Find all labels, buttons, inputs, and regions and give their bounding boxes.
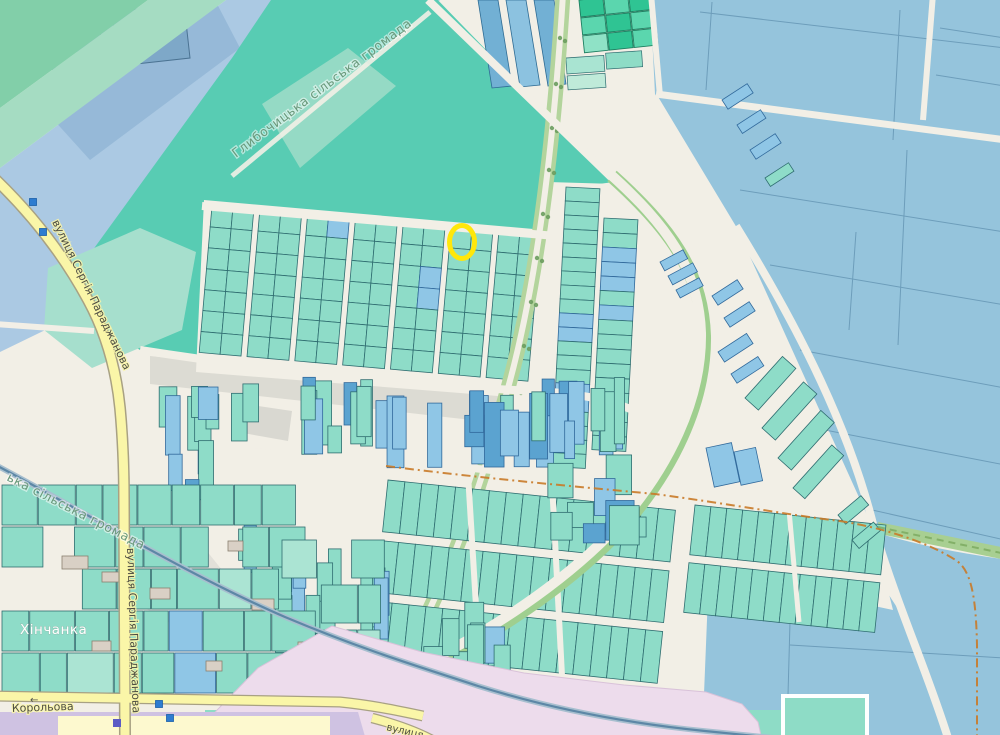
poi-square-marker[interactable] xyxy=(167,715,174,722)
map-viewport[interactable]: Глибочицька сільська громада ька сільськ… xyxy=(0,0,1000,735)
poi-square-marker[interactable] xyxy=(156,701,163,708)
station-marker[interactable] xyxy=(113,719,121,727)
green-square-parcel[interactable] xyxy=(783,696,867,735)
street-label-korolova: Корольова xyxy=(12,700,74,715)
emerald-parcels[interactable] xyxy=(579,0,658,53)
cadastral-map[interactable]: Глибочицька сільська громада ька сільськ… xyxy=(0,0,1000,735)
poi-square-marker[interactable] xyxy=(40,229,47,236)
oneway-arrow-icon: ← xyxy=(30,695,38,706)
pale-yellow-area xyxy=(58,716,330,735)
place-label-khinchanka: Хінчанка xyxy=(20,622,87,638)
poi-square-marker[interactable] xyxy=(30,199,37,206)
